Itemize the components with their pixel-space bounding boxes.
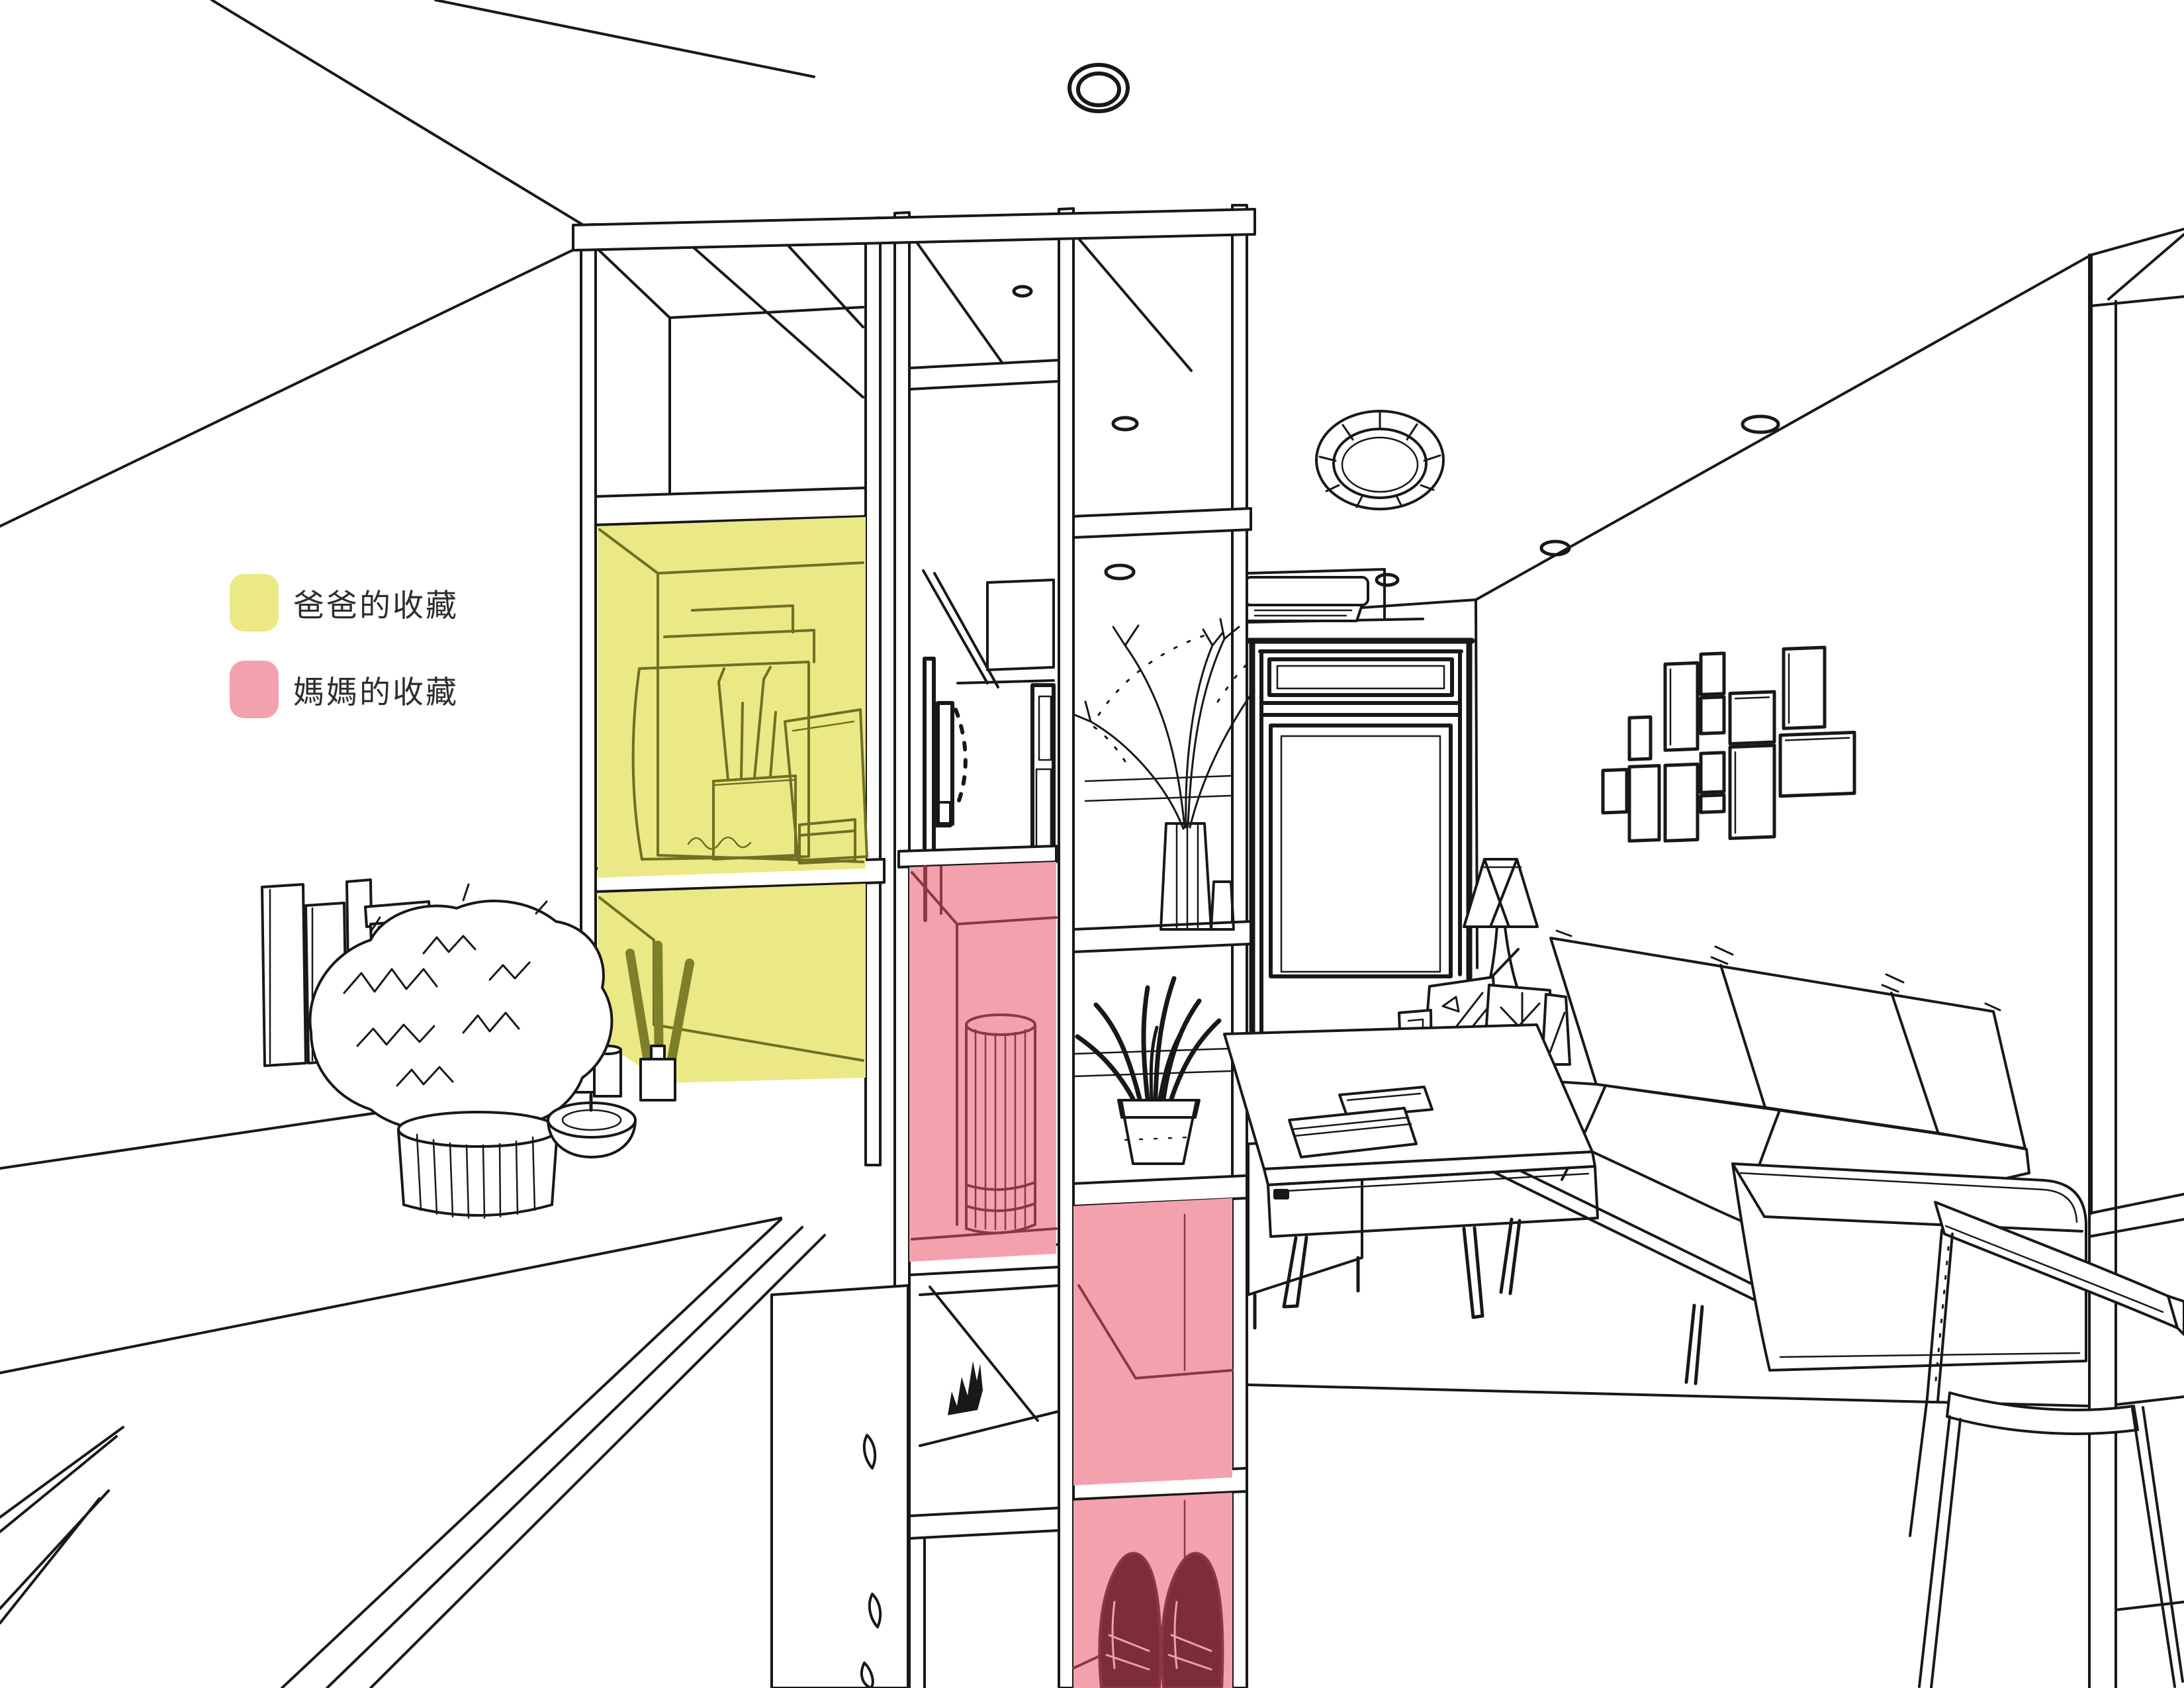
branch-vase: [1075, 619, 1253, 929]
chair-seat: [1947, 1393, 2138, 1434]
legend-swatch-dad: [230, 574, 279, 632]
ceiling-corner-line: [1476, 255, 2091, 600]
picture-frame: [1603, 770, 1627, 813]
drum-ceiling-light: [1316, 411, 1443, 509]
picture-frame: [1701, 697, 1724, 733]
picture-frame: [1784, 647, 1825, 728]
picture-frame: [1701, 653, 1724, 694]
recessed-ring-light: [1069, 65, 1128, 111]
interior-illustration-page: 爸爸的收藏 媽媽的收藏: [0, 0, 2184, 1688]
legend-swatch-mom: [230, 661, 279, 718]
kitchen-counter-right: [2089, 255, 2184, 1688]
picture-frame: [1701, 795, 1724, 812]
picture-frame: [1730, 692, 1774, 744]
picture-frame: [1665, 764, 1698, 841]
floor-lamp: [1464, 859, 1537, 994]
small-plant-silhouette: [948, 1361, 983, 1415]
picture-frame: [1780, 732, 1854, 796]
drawer-cabinet: [772, 1286, 908, 1688]
recessed-spot-lights: [1014, 287, 1778, 585]
picture-frame: [1701, 753, 1724, 792]
snake-plant: [1077, 978, 1219, 1164]
legend-label-mom: 媽媽的收藏: [293, 667, 459, 712]
right-cabinet-top: [2091, 229, 2184, 306]
legend-item-dad: 爸爸的收藏: [230, 574, 459, 632]
air-conditioner: [1245, 577, 1368, 621]
left-counter: [0, 1080, 825, 1688]
picture-frame: [1730, 745, 1774, 839]
legend-item-mom: 媽媽的收藏: [230, 661, 459, 718]
picture-frame: [1629, 717, 1651, 759]
room-line-drawing: [0, 0, 2184, 1688]
picture-frame: [1629, 766, 1659, 841]
gallery-wall: [1603, 646, 1854, 843]
legend-label-dad: 爸爸的收藏: [293, 580, 459, 626]
